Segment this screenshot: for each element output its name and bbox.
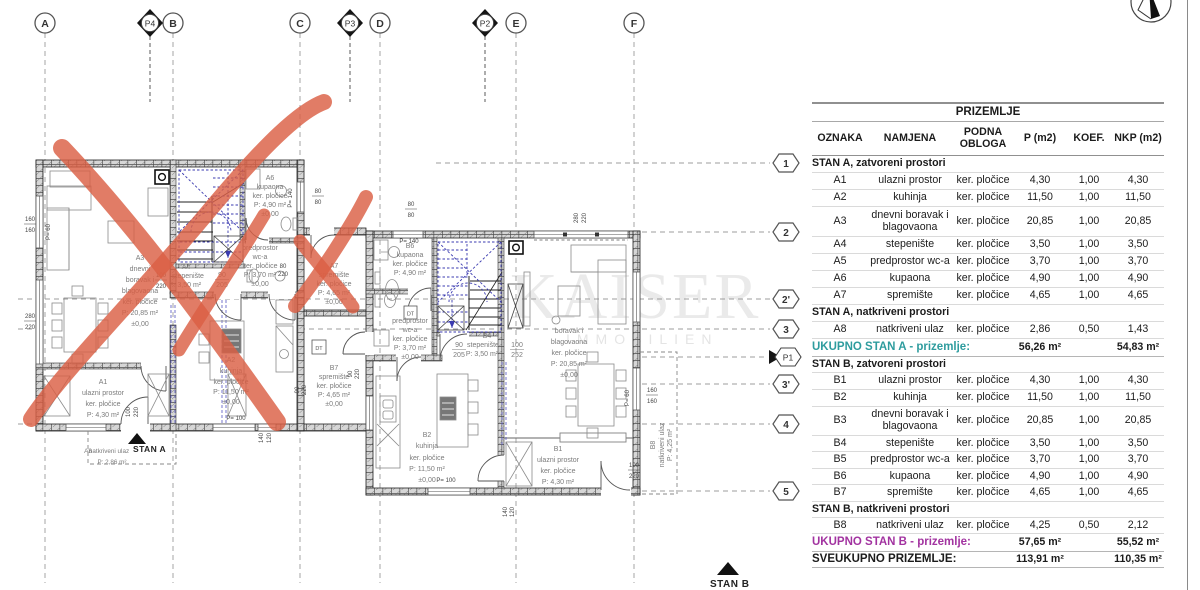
svg-text:3: 3 (783, 325, 789, 336)
svg-text:ulazni prostor: ulazni prostor (82, 390, 125, 397)
svg-text:ker. pločice: ker. pločice (392, 336, 427, 343)
svg-text:160: 160 (25, 217, 36, 223)
svg-text:2: 2 (783, 228, 789, 239)
svg-text:P3: P3 (345, 19, 356, 29)
svg-text:80: 80 (315, 200, 322, 206)
svg-text:±0,00: ±0,00 (418, 477, 436, 484)
svg-text:F: F (631, 18, 638, 30)
svg-text:220: 220 (302, 384, 308, 395)
svg-text:4: 4 (783, 420, 789, 431)
svg-text:160: 160 (647, 388, 658, 394)
svg-text:220: 220 (355, 368, 361, 379)
svg-text:ker. pločice: ker. pločice (252, 193, 287, 200)
svg-text:STAN A: STAN A (133, 444, 166, 454)
svg-text:STAN B: STAN B (710, 579, 749, 590)
svg-text:280: 280 (574, 212, 580, 223)
svg-text:P: 3,70 m²: P: 3,70 m² (244, 272, 277, 279)
svg-text:C: C (296, 18, 304, 30)
svg-text:A1: A1 (99, 379, 108, 386)
svg-text:ker. pločice: ker. pločice (551, 350, 586, 357)
svg-text:DT: DT (407, 312, 415, 318)
svg-text:140: 140 (259, 432, 265, 443)
svg-text:±0,00: ±0,00 (401, 354, 419, 361)
svg-text:B2: B2 (423, 432, 432, 439)
svg-text:252: 252 (511, 352, 523, 359)
svg-text:P: 4,30 m²: P: 4,30 m² (87, 412, 120, 419)
svg-text:P= 60: P= 60 (46, 223, 52, 240)
svg-text:160: 160 (647, 399, 658, 405)
svg-text:P= 140: P= 140 (399, 239, 419, 245)
svg-text:160: 160 (25, 228, 36, 234)
svg-text:P: 11,50 m²: P: 11,50 m² (409, 466, 445, 473)
svg-text:90: 90 (348, 370, 354, 377)
svg-text:DT: DT (315, 346, 323, 352)
svg-text:±0,00: ±0,00 (325, 401, 343, 408)
svg-text:stepenište: stepenište (467, 342, 499, 349)
svg-text:spremište: spremište (319, 374, 349, 381)
svg-text:100: 100 (126, 406, 132, 417)
svg-text:±0,00: ±0,00 (222, 399, 240, 406)
svg-text:B: B (169, 18, 177, 30)
svg-text:220: 220 (582, 212, 588, 223)
svg-text:B4: B4 (483, 333, 492, 340)
svg-text:120: 120 (510, 506, 516, 517)
svg-text:P1: P1 (783, 353, 794, 363)
svg-text:blagovaona: blagovaona (551, 339, 587, 346)
svg-text:ker. pločice: ker. pločice (392, 261, 427, 268)
svg-text:90: 90 (295, 386, 301, 393)
svg-text:predprostor: predprostor (392, 318, 428, 325)
svg-text:P= 100: P= 100 (226, 416, 246, 422)
svg-text:80: 80 (408, 213, 415, 219)
svg-text:205: 205 (453, 352, 465, 359)
svg-text:P: 4,90 m²: P: 4,90 m² (254, 202, 287, 209)
svg-text:140: 140 (503, 506, 509, 517)
svg-text:IMMOBILIEN: IMMOBILIEN (566, 331, 718, 347)
svg-text:220: 220 (25, 325, 36, 331)
svg-text:B7: B7 (330, 365, 339, 372)
svg-text:90: 90 (455, 342, 463, 349)
svg-text:B8: B8 (650, 441, 657, 450)
svg-text:kupaona: kupaona (397, 252, 424, 259)
svg-text:P= 140: P= 140 (288, 188, 294, 208)
svg-text:220: 220 (134, 406, 140, 417)
svg-text:ulazni prostor: ulazni prostor (537, 457, 580, 464)
svg-text:220: 220 (278, 272, 289, 278)
svg-text:280: 280 (25, 314, 36, 320)
svg-text:boravak i: boravak i (555, 328, 584, 335)
svg-text:P4: P4 (145, 19, 156, 29)
svg-text:±0,00: ±0,00 (131, 321, 149, 328)
svg-text:P= 60: P= 60 (625, 389, 631, 406)
svg-text:ker. pločice: ker. pločice (242, 263, 277, 270)
svg-text:wc-a: wc-a (252, 254, 268, 261)
svg-text:±0,00: ±0,00 (560, 372, 578, 379)
svg-text:80: 80 (280, 264, 287, 270)
svg-text:A3: A3 (136, 255, 145, 262)
svg-text:kuhinja: kuhinja (416, 443, 438, 450)
svg-text:P= 100: P= 100 (436, 478, 456, 484)
svg-text:B1: B1 (554, 446, 563, 453)
svg-text:P: 4,30 m²: P: 4,30 m² (542, 479, 575, 486)
svg-text:P: 4,65 m²: P: 4,65 m² (318, 392, 351, 399)
svg-text:A4: A4 (182, 264, 191, 271)
svg-text:220: 220 (156, 284, 167, 290)
svg-text:P: 4,25 m²: P: 4,25 m² (667, 428, 674, 461)
svg-text:ker. pločice: ker. pločice (85, 401, 120, 408)
svg-text:5: 5 (783, 487, 789, 498)
svg-text:A6: A6 (266, 175, 275, 182)
svg-text:P: 3,50 m²: P: 3,50 m² (466, 351, 499, 358)
svg-text:wc-a: wc-a (402, 327, 418, 334)
svg-text:ker. pločice: ker. pločice (540, 468, 575, 475)
svg-text:100: 100 (629, 463, 640, 469)
svg-text:1: 1 (783, 159, 789, 170)
svg-text:±0,00: ±0,00 (251, 281, 269, 288)
svg-text:D: D (376, 18, 384, 30)
svg-text:P: 2,86 m²: P: 2,86 m² (97, 459, 126, 466)
svg-text:220: 220 (629, 474, 640, 480)
svg-text:P2: P2 (480, 19, 491, 29)
svg-text:100: 100 (511, 342, 523, 349)
svg-text:120: 120 (267, 432, 273, 443)
svg-text:natkriveni ulaz: natkriveni ulaz (89, 448, 129, 455)
svg-text:P: 20,85 m²: P: 20,85 m² (551, 361, 588, 368)
svg-text:P: 3,70 m²: P: 3,70 m² (394, 345, 427, 352)
svg-text:80: 80 (408, 202, 415, 208)
svg-text:P: 4,90 m²: P: 4,90 m² (394, 270, 427, 277)
svg-text:2': 2' (782, 295, 790, 306)
svg-text:3': 3' (782, 380, 790, 391)
svg-text:ker. pločice: ker. pločice (316, 383, 351, 390)
svg-text:kupaona: kupaona (257, 184, 284, 191)
svg-text:A: A (41, 18, 49, 30)
svg-text:80: 80 (315, 189, 322, 195)
svg-text:ker. pločice: ker. pločice (409, 455, 444, 462)
svg-text:natkriveni ulaz: natkriveni ulaz (659, 422, 666, 467)
svg-text:E: E (512, 18, 519, 30)
